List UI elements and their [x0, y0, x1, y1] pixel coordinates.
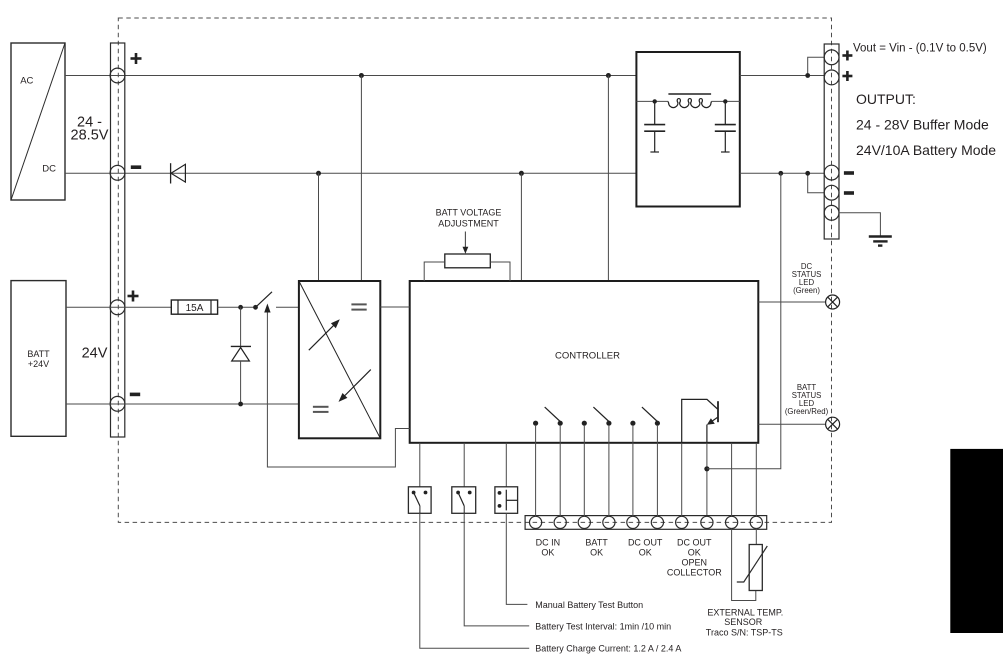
- svg-text:+24V: +24V: [28, 359, 49, 369]
- svg-text:OUTPUT:: OUTPUT:: [856, 91, 916, 107]
- svg-text:DC OUT: DC OUT: [677, 538, 712, 548]
- svg-text:Manual Battery Test Button: Manual Battery Test Button: [535, 600, 643, 610]
- svg-text:(Green/Red): (Green/Red): [785, 407, 829, 416]
- svg-text:Vout = Vin - (0.1V to 0.5V): Vout = Vin - (0.1V to 0.5V): [853, 43, 987, 55]
- svg-text:Traco S/N: TSP-TS: Traco S/N: TSP-TS: [706, 627, 783, 637]
- svg-text:BATT VOLTAGE: BATT VOLTAGE: [436, 208, 502, 218]
- svg-text:24V: 24V: [82, 346, 108, 362]
- svg-text:OK: OK: [541, 548, 554, 558]
- svg-text:28.5V: 28.5V: [71, 128, 109, 144]
- svg-text:24 - 28V Buffer Mode: 24 - 28V Buffer Mode: [856, 116, 989, 132]
- svg-text:Battery Charge Current: 1.2 A: Battery Charge Current: 1.2 A / 2.4 A: [535, 644, 681, 654]
- svg-text:OPEN: OPEN: [682, 558, 708, 568]
- svg-text:DC IN: DC IN: [536, 538, 561, 548]
- svg-text:24V/10A Battery Mode: 24V/10A Battery Mode: [856, 142, 996, 158]
- svg-text:BATT: BATT: [27, 349, 50, 359]
- svg-text:COLLECTOR: COLLECTOR: [667, 568, 722, 578]
- svg-text:(Green): (Green): [793, 286, 820, 295]
- svg-text:OK: OK: [639, 548, 652, 558]
- svg-text:AC: AC: [20, 75, 33, 86]
- svg-text:ADJUSTMENT: ADJUSTMENT: [438, 219, 499, 229]
- svg-text:DC: DC: [42, 164, 56, 175]
- svg-text:15A: 15A: [186, 303, 204, 314]
- svg-text:DC OUT: DC OUT: [628, 538, 663, 548]
- svg-text:BATT: BATT: [585, 538, 608, 548]
- svg-text:CONTROLLER: CONTROLLER: [555, 351, 620, 362]
- svg-text:OK: OK: [688, 548, 701, 558]
- svg-text:SENSOR: SENSOR: [724, 617, 763, 627]
- svg-text:OK: OK: [590, 548, 603, 558]
- svg-text:Battery Test Interval: 1min /1: Battery Test Interval: 1min /10 min: [535, 621, 671, 631]
